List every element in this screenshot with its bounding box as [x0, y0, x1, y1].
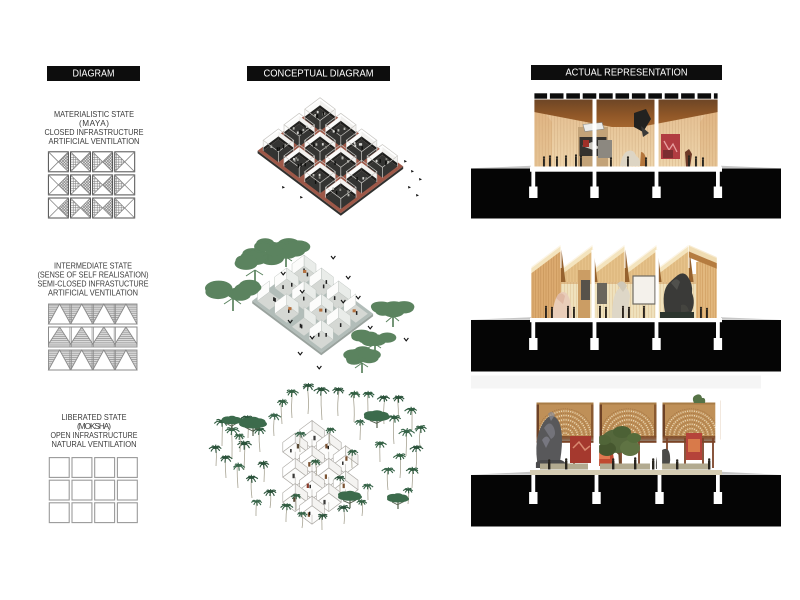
svg-text:OPEN INFRASTRUCTURE: OPEN INFRASTRUCTURE [51, 431, 138, 440]
svg-text:SEMI-CLOSED INFRASTUCTURE: SEMI-CLOSED INFRASTUCTURE [38, 280, 149, 289]
svg-text:CLOSED INFRASTRUCTURE: CLOSED INFRASTRUCTURE [45, 128, 144, 137]
svg-text:INTERMEDIATE STATE: INTERMEDIATE STATE [54, 262, 132, 271]
svg-text:(MOKSHA): (MOKSHA) [77, 422, 111, 431]
svg-text:CONCEPTUAL DIAGRAM: CONCEPTUAL DIAGRAM [264, 69, 374, 80]
svg-text:ARTIFICIAL VENTILATION: ARTIFICIAL VENTILATION [48, 289, 138, 298]
svg-text:(SENSE OF SELF REALISATION): (SENSE OF SELF REALISATION) [38, 271, 149, 280]
svg-text:DIAGRAM: DIAGRAM [73, 69, 115, 80]
svg-text:(MAYA): (MAYA) [79, 119, 109, 128]
svg-text:ACTUAL REPRESENTATION: ACTUAL REPRESENTATION [566, 68, 688, 79]
svg-text:LIBERATED STATE: LIBERATED STATE [62, 413, 127, 422]
svg-text:NATURAL VENTILATION: NATURAL VENTILATION [52, 440, 137, 449]
svg-text:ARTIFICIAL VENTILATION: ARTIFICIAL VENTILATION [49, 137, 140, 146]
svg-text:MATERIALISTIC STATE: MATERIALISTIC STATE [54, 110, 134, 119]
